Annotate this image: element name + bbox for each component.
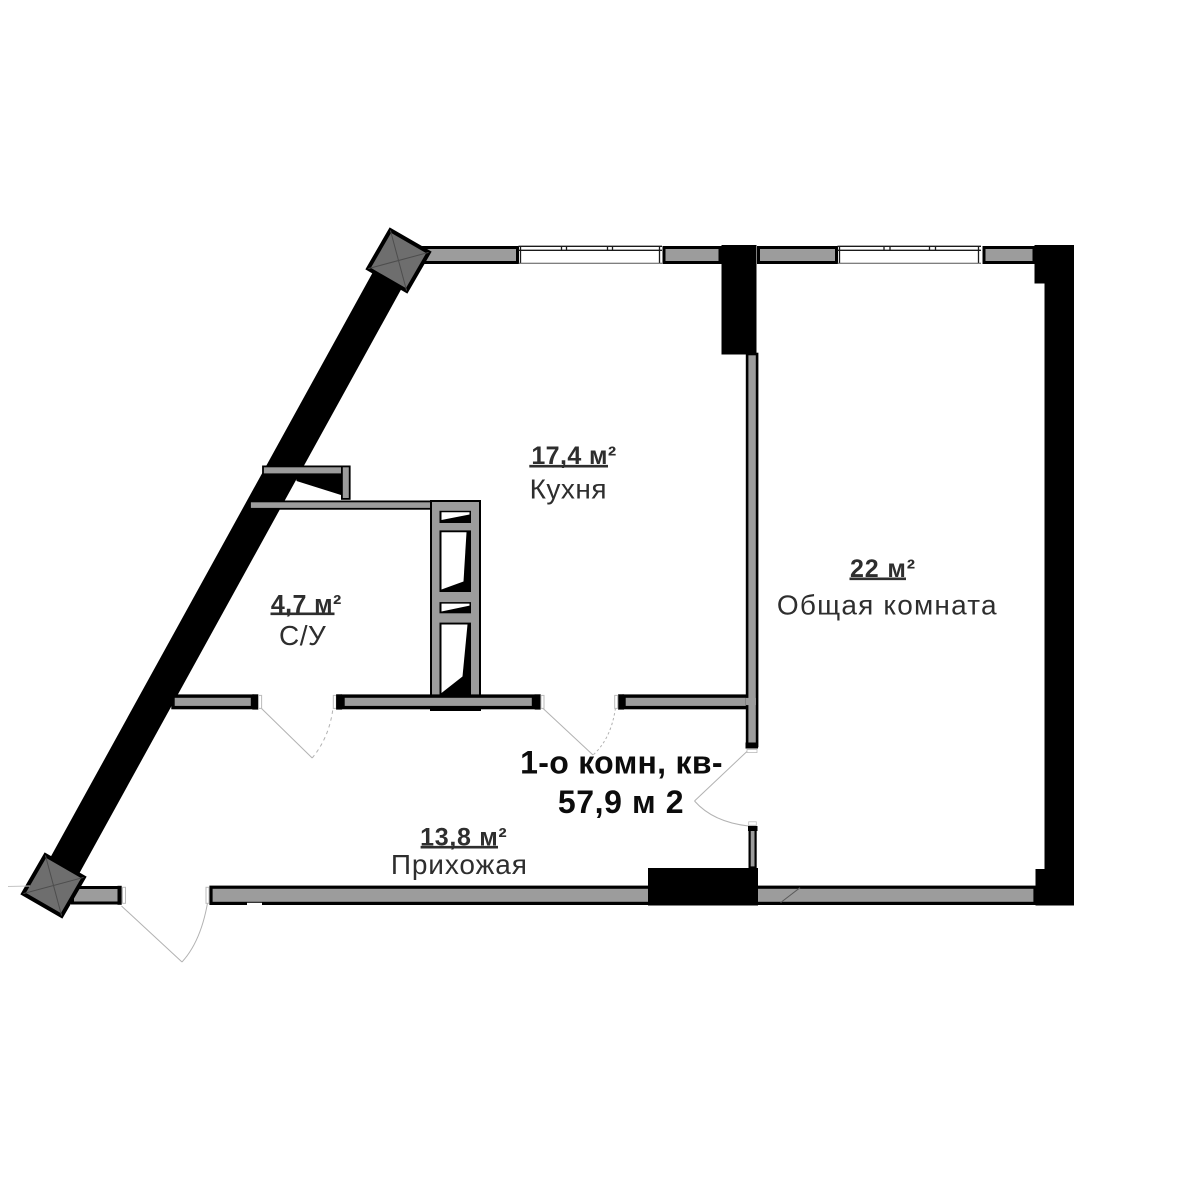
svg-text:С/У: С/У: [279, 620, 326, 651]
svg-text:Прихожая: Прихожая: [391, 849, 528, 880]
svg-text:1-о комн, кв-: 1-о комн, кв-: [520, 744, 723, 780]
svg-text:Общая комната: Общая комната: [777, 589, 998, 620]
svg-text:Кухня: Кухня: [530, 474, 607, 505]
svg-text:57,9 м 2: 57,9 м 2: [558, 784, 684, 820]
